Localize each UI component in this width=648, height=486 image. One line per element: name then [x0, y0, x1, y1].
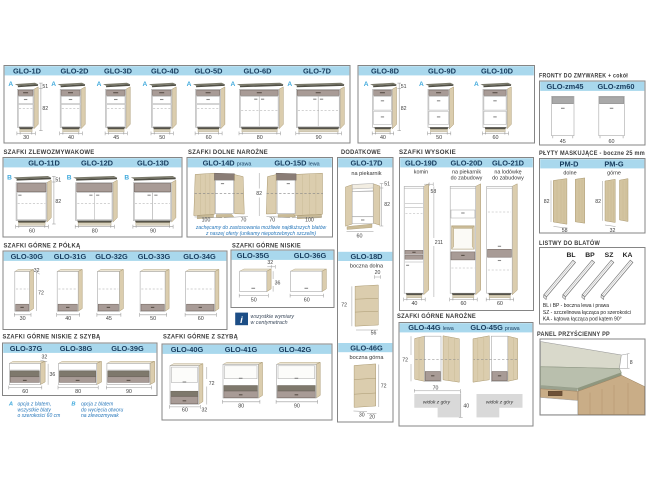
svg-text:50: 50: [251, 297, 257, 303]
svg-text:211: 211: [435, 240, 443, 246]
svg-text:58: 58: [562, 228, 568, 234]
svg-text:70: 70: [269, 217, 275, 223]
svg-text:w centymetrach: w centymetrach: [251, 320, 288, 326]
svg-text:na piekarnik: na piekarnik: [351, 171, 381, 177]
svg-text:60: 60: [198, 316, 204, 322]
svg-text:SZAFKI GÓRNE NISKIE: SZAFKI GÓRNE NISKIE: [232, 241, 301, 250]
svg-text:GLO-10D: GLO-10D: [481, 66, 514, 75]
svg-text:A: A: [97, 81, 102, 88]
svg-text:60: 60: [22, 389, 28, 395]
svg-text:A: A: [474, 81, 479, 88]
svg-text:82: 82: [595, 199, 601, 205]
svg-text:GLO-8D: GLO-8D: [371, 66, 400, 75]
svg-text:8: 8: [630, 360, 633, 366]
svg-text:LISTWY DO BLATÓW: LISTWY DO BLATÓW: [539, 238, 601, 247]
svg-text:GLO-42G: GLO-42G: [279, 345, 312, 354]
svg-text:DODATKOWE: DODATKOWE: [341, 149, 381, 156]
svg-text:A: A: [51, 81, 56, 88]
svg-text:60: 60: [609, 139, 615, 145]
svg-text:SZAFKI GÓRNE NAROŻNE: SZAFKI GÓRNE NAROŻNE: [397, 311, 476, 320]
svg-text:45: 45: [560, 139, 566, 145]
svg-text:SZAFKI ZLEWOZMYWAKOWE: SZAFKI ZLEWOZMYWAKOWE: [4, 149, 95, 156]
svg-text:PŁYTY MASKUJĄCE - boczne 25 mm: PŁYTY MASKUJĄCE - boczne 25 mm: [539, 150, 645, 157]
svg-text:80: 80: [238, 403, 244, 409]
svg-text:SZAFKI WYSOKIE: SZAFKI WYSOKIE: [399, 149, 456, 156]
svg-text:45: 45: [106, 316, 112, 322]
svg-text:80: 80: [257, 135, 263, 141]
svg-text:SZAFKI DOLNE NAROŻNE: SZAFKI DOLNE NAROŻNE: [188, 147, 268, 156]
svg-text:72: 72: [38, 291, 44, 297]
svg-text:A: A: [287, 81, 292, 88]
svg-text:GLO-38G: GLO-38G: [60, 344, 93, 353]
svg-text:45: 45: [113, 135, 119, 141]
svg-text:o szerokości 60 cm: o szerokości 60 cm: [18, 413, 61, 419]
svg-text:SZ - szczelinowa łącząca po sz: SZ - szczelinowa łącząca po szerokości: [543, 310, 631, 316]
svg-text:72: 72: [402, 357, 408, 363]
svg-text:widok z góry: widok z góry: [486, 399, 514, 405]
svg-text:GLO-9D: GLO-9D: [428, 66, 457, 75]
svg-text:GLO-21D: GLO-21D: [492, 159, 525, 168]
svg-text:GLO-32G: GLO-32G: [95, 252, 128, 261]
svg-text:90: 90: [294, 403, 300, 409]
svg-text:30: 30: [20, 316, 26, 322]
svg-text:70: 70: [433, 385, 439, 391]
svg-text:A: A: [364, 81, 369, 88]
svg-text:82: 82: [55, 199, 61, 205]
svg-text:100: 100: [202, 217, 211, 223]
svg-text:GLO-4D: GLO-4D: [151, 66, 180, 75]
svg-text:36: 36: [50, 372, 56, 378]
svg-text:51: 51: [42, 84, 48, 90]
svg-text:40: 40: [68, 135, 74, 141]
svg-text:na zlewozmywak: na zlewozmywak: [81, 413, 119, 419]
svg-text:GLO-40G: GLO-40G: [171, 345, 204, 354]
svg-text:32: 32: [267, 260, 273, 266]
svg-text:32: 32: [42, 354, 48, 360]
svg-text:20: 20: [369, 414, 375, 420]
svg-text:72: 72: [341, 303, 347, 309]
svg-text:GLO-13D: GLO-13D: [137, 159, 170, 168]
svg-text:80: 80: [92, 228, 98, 234]
svg-text:SZAFKI GÓRNE Z SZYBĄ: SZAFKI GÓRNE Z SZYBĄ: [163, 332, 238, 341]
svg-text:GLO-3D: GLO-3D: [104, 66, 133, 75]
svg-text:GLO-2D: GLO-2D: [61, 66, 90, 75]
svg-text:60: 60: [493, 135, 499, 141]
svg-text:GLO-7D: GLO-7D: [303, 66, 332, 75]
svg-text:GLO-18D: GLO-18D: [350, 252, 383, 261]
svg-text:do zabudowy: do zabudowy: [451, 176, 483, 182]
svg-text:GLO-17D: GLO-17D: [350, 159, 383, 168]
svg-text:do zabudowy: do zabudowy: [492, 176, 524, 182]
svg-text:40: 40: [380, 135, 386, 141]
svg-text:GLO-zm45: GLO-zm45: [547, 82, 584, 91]
svg-text:GLO-5D: GLO-5D: [195, 66, 224, 75]
svg-text:SZAFKI GÓRNE NISKIE Z SZYBĄ: SZAFKI GÓRNE NISKIE Z SZYBĄ: [3, 332, 101, 341]
svg-text:PM-D: PM-D: [560, 160, 580, 169]
svg-text:widok z góry: widok z góry: [423, 399, 451, 405]
svg-text:90: 90: [126, 389, 132, 395]
svg-text:60: 60: [497, 301, 503, 307]
svg-text:GLO-19D: GLO-19D: [405, 159, 438, 168]
svg-text:72: 72: [209, 381, 215, 387]
svg-text:32: 32: [610, 228, 616, 234]
svg-text:A: A: [419, 81, 424, 88]
svg-text:51: 51: [401, 84, 407, 90]
svg-text:82: 82: [256, 191, 262, 197]
svg-text:GLO-6D: GLO-6D: [244, 66, 273, 75]
svg-text:B: B: [71, 402, 75, 408]
svg-text:GLO-37G: GLO-37G: [10, 344, 43, 353]
svg-text:BL: BL: [566, 252, 575, 259]
svg-text:82: 82: [384, 202, 390, 208]
svg-text:boczna dolna: boczna dolna: [350, 263, 384, 269]
svg-text:100: 100: [305, 217, 314, 223]
svg-text:40: 40: [411, 301, 417, 307]
svg-text:50: 50: [150, 316, 156, 322]
svg-text:51: 51: [55, 177, 61, 183]
svg-text:60: 60: [29, 228, 35, 234]
svg-text:A: A: [8, 81, 13, 88]
svg-text:30: 30: [359, 413, 365, 419]
svg-text:BL i BP - boczna lewa i prawa: BL i BP - boczna lewa i prawa: [543, 303, 609, 309]
svg-text:60: 60: [357, 233, 363, 239]
svg-text:82: 82: [42, 106, 48, 112]
svg-text:PANEL PRZYŚCIENNY PP: PANEL PRZYŚCIENNY PP: [537, 329, 610, 338]
svg-text:B: B: [7, 174, 12, 181]
svg-text:GLO-34G: GLO-34G: [183, 252, 216, 261]
svg-text:82: 82: [401, 106, 407, 112]
svg-text:dolne: dolne: [563, 171, 576, 177]
svg-text:SZAFKI GÓRNE Z PÓŁKĄ: SZAFKI GÓRNE Z PÓŁKĄ: [4, 241, 81, 250]
svg-text:50: 50: [436, 135, 442, 141]
svg-text:GLO-12D: GLO-12D: [81, 159, 114, 168]
svg-text:GLO-30G: GLO-30G: [11, 252, 44, 261]
svg-text:BP: BP: [585, 252, 595, 259]
svg-text:60: 60: [182, 407, 188, 413]
svg-text:58: 58: [431, 189, 437, 195]
svg-text:20: 20: [375, 270, 381, 276]
svg-text:90: 90: [150, 228, 156, 234]
svg-text:60: 60: [304, 297, 310, 303]
svg-text:70: 70: [241, 217, 247, 223]
svg-text:PM-G: PM-G: [604, 160, 624, 169]
svg-text:A: A: [143, 81, 148, 88]
svg-text:górne: górne: [607, 171, 621, 177]
svg-text:60: 60: [206, 135, 212, 141]
svg-text:82: 82: [544, 199, 550, 205]
svg-text:GLO-1D: GLO-1D: [13, 66, 42, 75]
svg-text:GLO-46G: GLO-46G: [350, 343, 383, 352]
svg-text:GLO-36G: GLO-36G: [294, 251, 327, 260]
svg-text:komin: komin: [414, 170, 428, 176]
svg-text:30: 30: [23, 135, 29, 141]
svg-text:72: 72: [381, 384, 387, 390]
svg-text:56: 56: [371, 331, 377, 337]
svg-text:i: i: [240, 315, 243, 326]
svg-text:KA: KA: [623, 252, 633, 259]
svg-text:50: 50: [159, 135, 165, 141]
svg-text:GLO-zm60: GLO-zm60: [598, 82, 635, 91]
svg-text:40: 40: [65, 316, 71, 322]
svg-text:GLO-11D: GLO-11D: [28, 159, 60, 168]
svg-text:A: A: [187, 81, 192, 88]
svg-text:36: 36: [275, 280, 281, 286]
svg-text:A: A: [8, 402, 13, 408]
svg-text:51: 51: [384, 182, 390, 188]
svg-text:FRONTY DO ZMYWAREK + cokół: FRONTY DO ZMYWAREK + cokół: [539, 73, 628, 80]
svg-text:B: B: [124, 174, 129, 181]
svg-text:GLO-20D: GLO-20D: [450, 159, 483, 168]
svg-text:boczna górna: boczna górna: [350, 355, 385, 361]
svg-text:GLO-33G: GLO-33G: [138, 252, 171, 261]
svg-text:z naszej oferty (unikamy niepo: z naszej oferty (unikamy niepotrzebnych …: [205, 231, 316, 237]
svg-text:B: B: [67, 174, 72, 181]
svg-text:32: 32: [202, 407, 208, 413]
svg-text:40: 40: [463, 404, 469, 410]
svg-text:GLO-39G: GLO-39G: [111, 344, 144, 353]
svg-text:60: 60: [460, 301, 466, 307]
svg-text:GLO-35G: GLO-35G: [237, 251, 270, 260]
svg-text:90: 90: [316, 135, 322, 141]
svg-text:GLO-41G: GLO-41G: [225, 345, 258, 354]
svg-text:GLO-31G: GLO-31G: [54, 252, 87, 261]
svg-text:SZ: SZ: [605, 252, 614, 259]
svg-text:A: A: [231, 81, 236, 88]
svg-text:KA - kątowa łącząca pod kątem: KA - kątowa łącząca pod kątem 90°: [543, 317, 622, 323]
svg-text:80: 80: [75, 389, 81, 395]
